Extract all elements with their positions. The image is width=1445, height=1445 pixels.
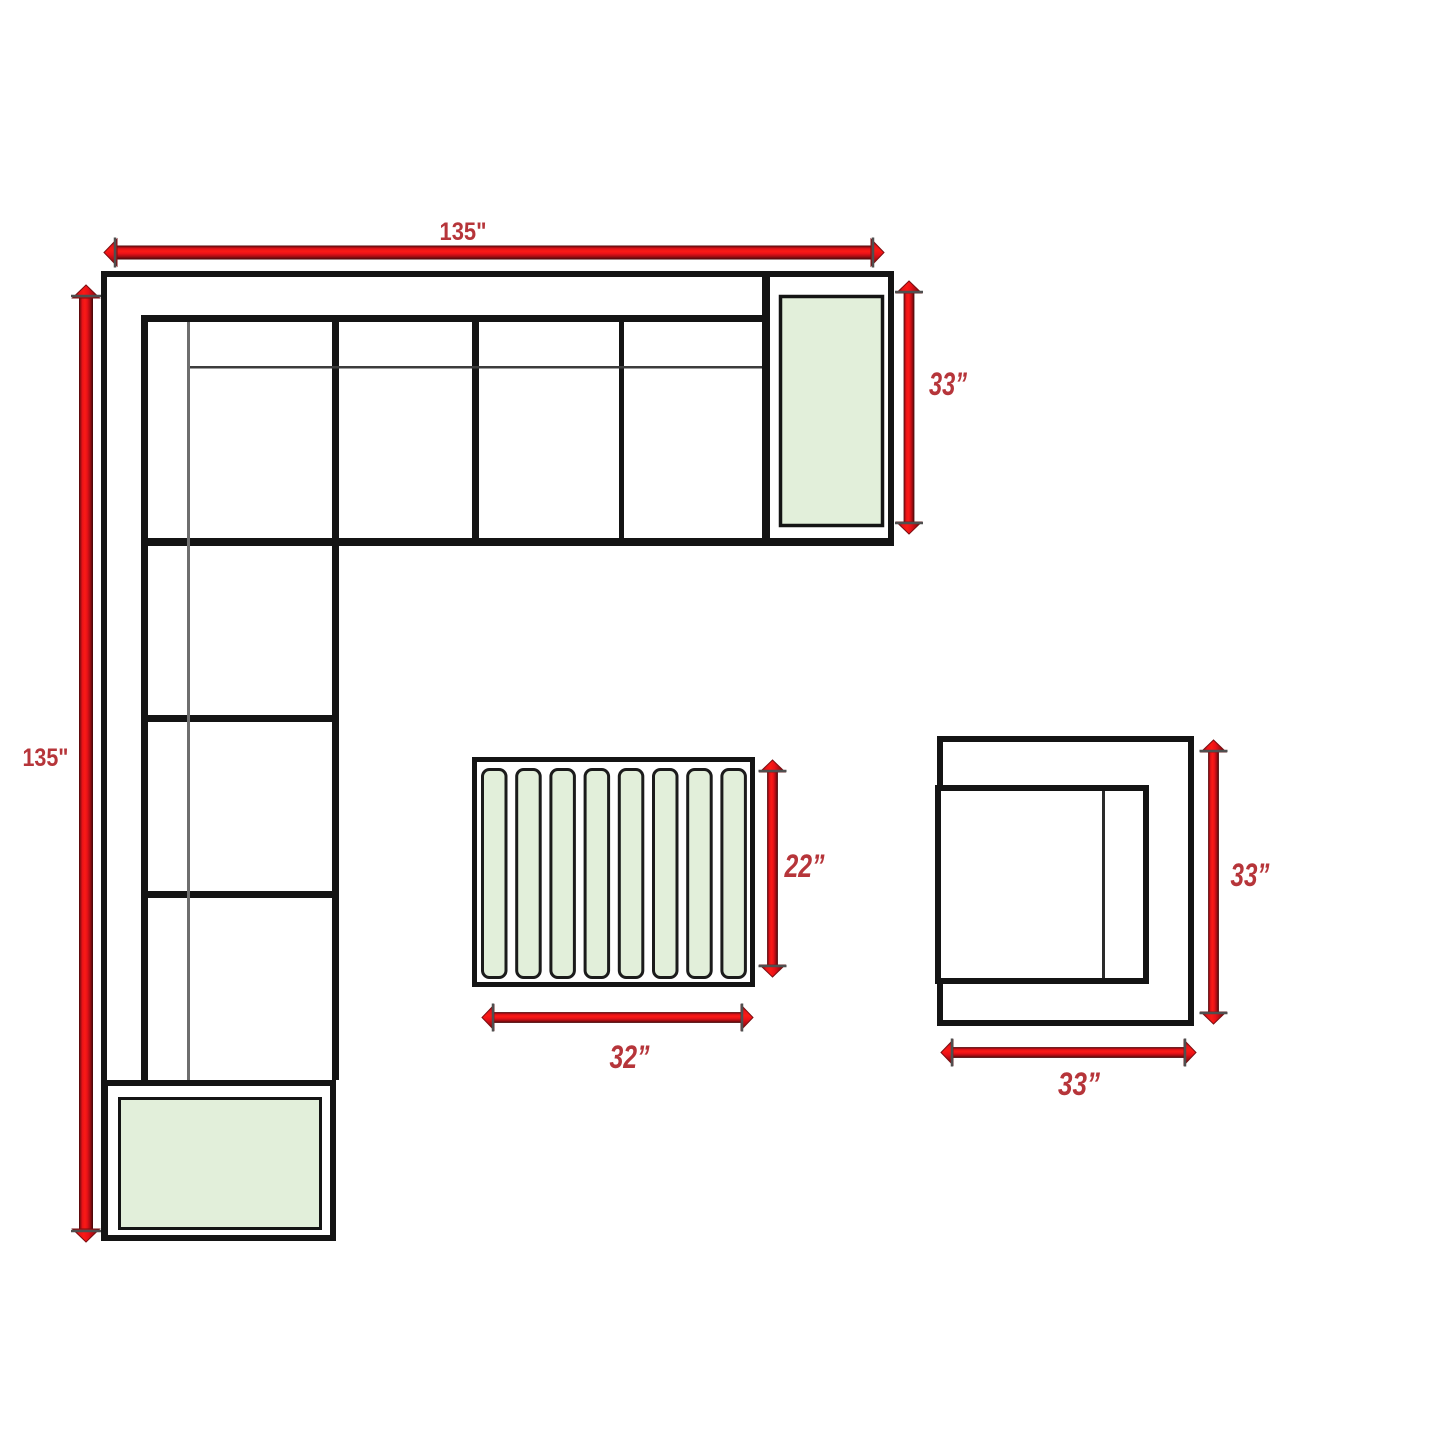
svg-text:32”: 32” — [610, 1039, 650, 1075]
svg-text:33”: 33” — [1231, 857, 1270, 893]
svg-text:33”: 33” — [929, 366, 967, 402]
svg-text:135": 135" — [23, 744, 69, 772]
svg-text:33”: 33” — [1058, 1066, 1100, 1102]
svg-text:135": 135" — [440, 218, 487, 246]
svg-text:22”: 22” — [784, 848, 825, 884]
